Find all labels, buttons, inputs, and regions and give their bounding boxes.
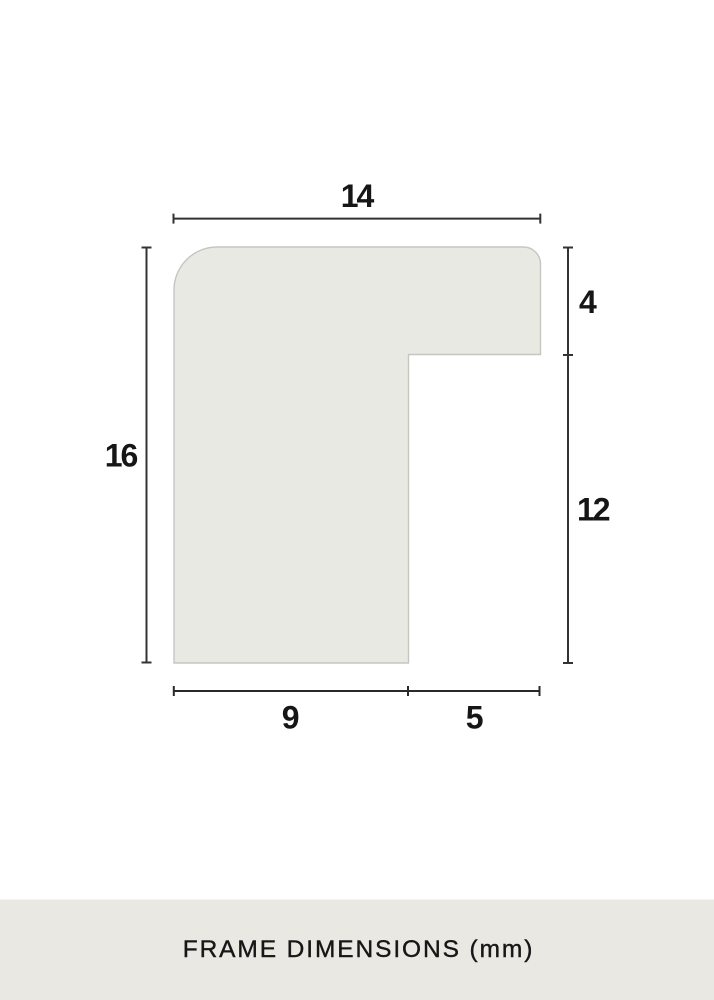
- svg-text:14: 14: [341, 178, 375, 214]
- svg-text:16: 16: [105, 438, 138, 474]
- svg-text:4: 4: [579, 284, 597, 320]
- svg-text:5: 5: [466, 700, 484, 736]
- svg-text:12: 12: [577, 492, 610, 528]
- svg-text:FRAME DIMENSIONS (mm): FRAME DIMENSIONS (mm): [183, 936, 535, 963]
- svg-text:9: 9: [282, 700, 300, 736]
